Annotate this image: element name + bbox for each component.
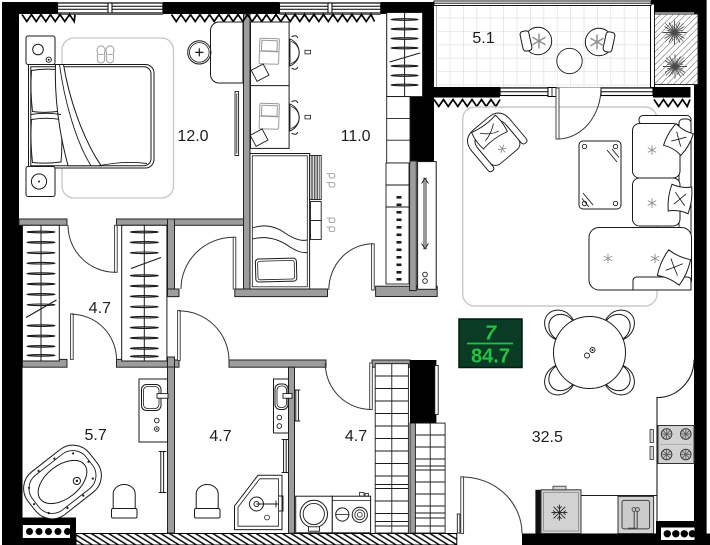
svg-text:5.7: 5.7 — [84, 427, 106, 444]
svg-text:7: 7 — [485, 323, 497, 345]
svg-text:4.7: 4.7 — [89, 300, 111, 317]
svg-text:32.5: 32.5 — [532, 429, 563, 446]
svg-text:11.0: 11.0 — [341, 128, 371, 145]
svg-text:84.7: 84.7 — [471, 346, 510, 368]
svg-text:12.0: 12.0 — [177, 128, 208, 145]
svg-text:4.7: 4.7 — [209, 428, 231, 445]
svg-text:5.1: 5.1 — [472, 30, 494, 47]
svg-text:4.7: 4.7 — [345, 428, 367, 445]
